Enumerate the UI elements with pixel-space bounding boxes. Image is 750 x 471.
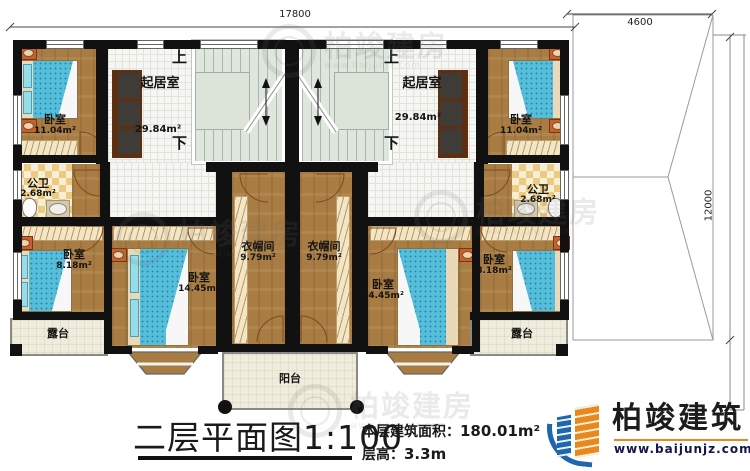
wall-bedroomTR-bottom bbox=[476, 155, 569, 163]
wall-bedroomTR-living bbox=[476, 47, 488, 164]
label-closet-right: 衣帽间 bbox=[296, 241, 352, 254]
window-top-1 bbox=[46, 40, 84, 49]
stair-break-left bbox=[246, 74, 285, 132]
floor-area-line: 本层建筑面积：180.01m² bbox=[362, 421, 540, 441]
floor-area-label: 本层建筑面积： bbox=[362, 424, 460, 440]
wall-bottom-L2 bbox=[198, 346, 218, 354]
watermark: 柏竣建房 www.baijunjz.com bbox=[116, 212, 302, 266]
label-living-left: 起居室 bbox=[126, 77, 194, 92]
floor-height-line: 层高：3.3m bbox=[362, 444, 446, 464]
watermark-logo-icon bbox=[414, 190, 468, 244]
terrace-left-post bbox=[10, 344, 22, 356]
brand-logo-icon bbox=[545, 400, 611, 462]
wall-bedroom-small-right-bottom bbox=[470, 312, 569, 320]
brand-name: 柏竣建筑 bbox=[612, 404, 744, 434]
label-stairs-up-left: 上 bbox=[172, 46, 187, 67]
label-bedroom-small-left: 卧室 bbox=[44, 249, 104, 262]
window-right-1 bbox=[560, 95, 569, 145]
watermark-logo-icon bbox=[116, 212, 170, 266]
label-stairs-down-left: 下 bbox=[172, 132, 187, 153]
area-bath-left: 2.68m² bbox=[12, 190, 64, 200]
label-terrace-left: 露台 bbox=[28, 328, 88, 341]
floor-area-value: 180.01m² bbox=[460, 422, 540, 440]
label-stairs-down-right: 下 bbox=[384, 132, 399, 153]
brand-website: www.baijunjz.com bbox=[614, 442, 750, 456]
area-bedroom-large-left: 14.45m² bbox=[166, 285, 232, 295]
floor-height-label: 层高： bbox=[362, 447, 404, 463]
dim-annex-width: 4600 bbox=[600, 17, 680, 28]
watermark-logo-icon bbox=[262, 24, 316, 78]
watermark-text: 柏竣建房 bbox=[476, 198, 600, 227]
wall-closets-bottom bbox=[216, 344, 368, 352]
wall-bottom-R2 bbox=[452, 346, 474, 354]
plan-title-text: 二层平面图 bbox=[133, 418, 303, 457]
title-underline bbox=[138, 456, 352, 460]
logo-building-orange bbox=[575, 404, 599, 458]
watermark-text: 柏竣建房 bbox=[324, 32, 448, 61]
label-bedroom-top-left: 卧室 bbox=[20, 114, 90, 127]
terrace-right-post bbox=[556, 344, 568, 356]
wall-bedroom-small-left-bottom bbox=[13, 312, 112, 320]
watermark-text: 柏竣建房 bbox=[178, 220, 302, 249]
area-bedroom-top-left: 11.04m² bbox=[20, 127, 90, 137]
window-top-2 bbox=[137, 40, 164, 49]
dim-annex-depth: 12000 bbox=[704, 176, 715, 236]
brand-rule bbox=[614, 439, 748, 441]
wall-bottom-R1 bbox=[366, 346, 388, 354]
wall-bath-left-right bbox=[100, 162, 110, 224]
label-living-right: 起居室 bbox=[388, 77, 456, 92]
area-bedroom-small-left: 8.18m² bbox=[44, 262, 104, 272]
window-right-3 bbox=[560, 252, 569, 300]
label-bedroom-small-right: 卧室 bbox=[464, 254, 524, 267]
wall-closet-right-outer bbox=[352, 162, 368, 352]
annex-roof-outline bbox=[573, 15, 713, 340]
label-terrace-right: 露台 bbox=[492, 328, 552, 341]
area-bedroom-small-right: 8.18m² bbox=[464, 267, 524, 277]
window-left-3 bbox=[13, 252, 22, 300]
label-bedroom-large-right: 卧室 bbox=[350, 279, 416, 292]
floor-height-value: 3.3m bbox=[404, 445, 446, 463]
wall-bedroomTL-bottom bbox=[13, 155, 108, 163]
window-top-6 bbox=[500, 40, 538, 49]
watermark: 柏竣建房 www.baijunjz.com bbox=[262, 24, 448, 78]
area-living-right: 29.84m² bbox=[388, 112, 448, 123]
watermark: 柏竣建房 www.baijunjz.com bbox=[414, 190, 600, 244]
wall-bedroomTL-living bbox=[96, 47, 108, 164]
wall-bottom-L1 bbox=[104, 346, 132, 354]
area-bedroom-large-right: 14.45m² bbox=[350, 292, 416, 302]
bay-windows bbox=[128, 352, 460, 374]
floor-plan-canvas: 起居室 29.84m² 起居室 29.84m² 上 下 上 下 卧室 11.04… bbox=[0, 0, 750, 471]
window-top-3 bbox=[200, 40, 258, 49]
area-closet-right: 9.79m² bbox=[296, 254, 352, 264]
wall-bedrooms-divider-left bbox=[104, 226, 112, 352]
label-bedroom-large-left: 卧室 bbox=[166, 272, 232, 285]
area-bedroom-top-right: 11.04m² bbox=[486, 127, 556, 137]
logo-building-blue bbox=[557, 415, 571, 457]
label-bedroom-top-right: 卧室 bbox=[486, 114, 556, 127]
dim-top-width: 17800 bbox=[250, 9, 340, 20]
stair-break-right bbox=[297, 74, 336, 132]
wall-bedrooms-divider-right bbox=[472, 226, 480, 352]
